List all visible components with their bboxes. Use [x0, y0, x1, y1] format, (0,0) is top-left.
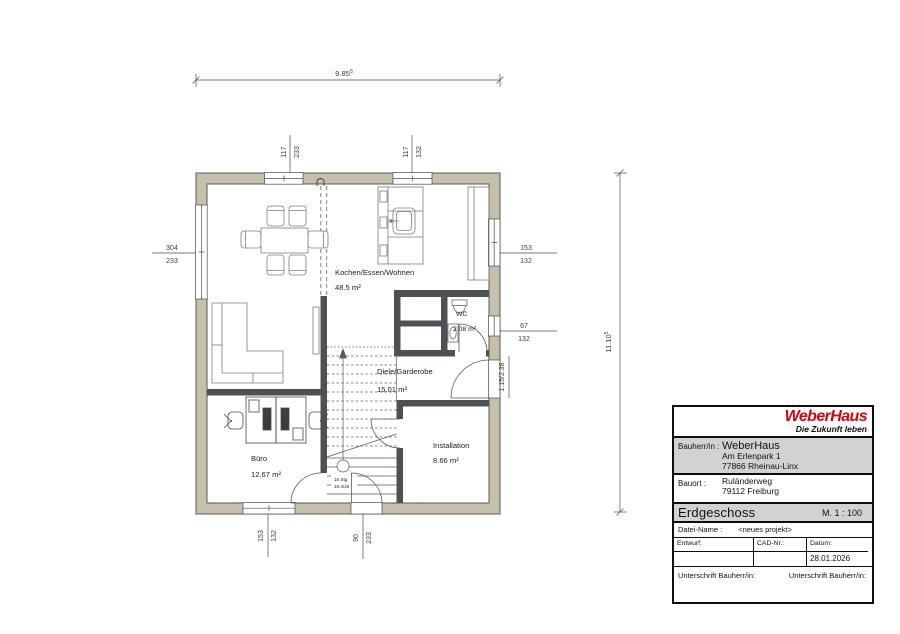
bauherr-section: Bauherr/in : WeberHaus Am Erlenpark 1 77… [674, 438, 872, 475]
wall-installation-left-lower [397, 448, 404, 503]
room-installation-name: Installation [433, 441, 469, 450]
entwurf-value [674, 552, 754, 566]
room-office-area: 12.67 m² [251, 470, 281, 479]
window-right-upper [488, 219, 500, 266]
room-hall-area: 15.01 m² [377, 385, 407, 394]
scale-label: M. 1 : 100 [822, 508, 862, 518]
title-block: WeberHaus Die Zukunft leben Bauherr/in :… [672, 405, 874, 604]
dim-bottom-left-w: 153 [258, 530, 265, 542]
dim-top-right-w: 117 [403, 146, 410, 157]
dim-bottom-center-w: 90 [353, 534, 360, 542]
dim-right-upper-w: 153 [520, 245, 532, 252]
bauherr-label: Bauherr/in : [678, 440, 722, 473]
window-top-left [265, 173, 304, 185]
stair-steps-label: 16 Stg [334, 477, 348, 482]
bauort-label: Bauort : [678, 477, 722, 502]
draft-table: Entwurf: CAD-Nr.: Datum: 28.01.2026 [674, 538, 872, 567]
filename-value: <neues projekt> [738, 525, 792, 537]
dining-table [261, 228, 308, 253]
filename-row: Datei-Name : <neues projekt> [674, 523, 872, 538]
cad-nr-label: CAD-Nr.: [754, 538, 807, 552]
dim-overall-width: 9.855 [335, 69, 353, 78]
room-hall-name: Diele/Garderobe [377, 367, 433, 376]
stair-label-bg [331, 473, 357, 493]
dim-left-h: 233 [166, 258, 178, 265]
wall-wc-bottom [394, 350, 455, 357]
window-bottom [243, 502, 295, 514]
cad-nr-value [754, 552, 807, 566]
wall-office-living [207, 389, 327, 396]
monitor [263, 408, 271, 430]
toilet-tank [452, 300, 467, 306]
monitor [281, 408, 289, 430]
room-wc-area: 2.08 m² [453, 326, 477, 333]
datum-value: 28.01.2026 [807, 552, 868, 566]
dining-chair [267, 206, 284, 226]
wall-hall-left [321, 296, 328, 473]
datum-label: Datum: [807, 538, 868, 552]
bauort-section: Bauort : Ruländerweg 79112 Freiburg [674, 475, 872, 504]
logo-tagline: Die Zukunft leben [674, 424, 867, 434]
floor-name: Erdgeschoss [678, 505, 755, 520]
door-bottom-opening [351, 502, 382, 514]
dim-overall-height: 11.105 [604, 331, 613, 352]
dim-top-right-h: 132 [416, 146, 423, 158]
bauherr-address-line2: 77866 Rheinau-Linx [722, 462, 798, 472]
signature-row: Unterschrift Bauherr/in: Unterschrift Ba… [674, 567, 872, 602]
dining-chair [241, 231, 261, 248]
dim-right-lower-w: 67 [520, 323, 528, 330]
stair-rise-label: 18.4/26 [334, 484, 350, 489]
logo-row: WeberHaus Die Zukunft leben [674, 407, 872, 438]
wall-installation-left-upper [397, 400, 404, 419]
room-living-name: Kochen/Essen/Wohnen [335, 268, 414, 277]
dim-left-w: 304 [166, 245, 178, 252]
dim-right-upper-h: 132 [520, 258, 532, 265]
room-office-name: Büro [251, 454, 267, 463]
dim-bottom-center-h: 233 [366, 532, 373, 544]
filename-label: Datei-Name : [678, 525, 722, 537]
entwurf-label: Entwurf: [674, 538, 754, 552]
room-installation-area: 8.66 m² [433, 456, 459, 465]
dim-bottom-left-h: 132 [271, 530, 278, 542]
weberhaus-logo: WeberHaus [674, 409, 867, 424]
stair-start-circle [337, 460, 349, 472]
dining-chair [289, 255, 306, 275]
dining-chair [289, 206, 306, 226]
sideboard [313, 307, 319, 354]
wall-closet-mid [394, 321, 448, 327]
bauort-address-line2: 79112 Freiburg [722, 487, 779, 497]
dim-entry-door: 1.15/2.38 [499, 362, 506, 391]
wall-wc-stub [486, 350, 489, 357]
dining-chair [308, 231, 328, 248]
wall-installation-top [397, 400, 490, 407]
signature-right-label: Unterschrift Bauherr/in: [789, 571, 866, 602]
signature-left-label: Unterschrift Bauherr/in: [678, 571, 755, 602]
room-wc-name: WC [456, 311, 467, 318]
floor-row: Erdgeschoss M. 1 : 100 [674, 504, 872, 523]
window-top-right [393, 173, 432, 185]
dim-top-left-w: 117 [281, 146, 288, 157]
window-left [196, 205, 208, 299]
dim-top-left-h: 233 [294, 146, 301, 158]
room-living-area: 48.5 m² [335, 283, 361, 292]
dim-right-lower-h: 132 [518, 336, 530, 343]
window-right-lower [488, 316, 500, 336]
dining-chair [267, 255, 284, 275]
